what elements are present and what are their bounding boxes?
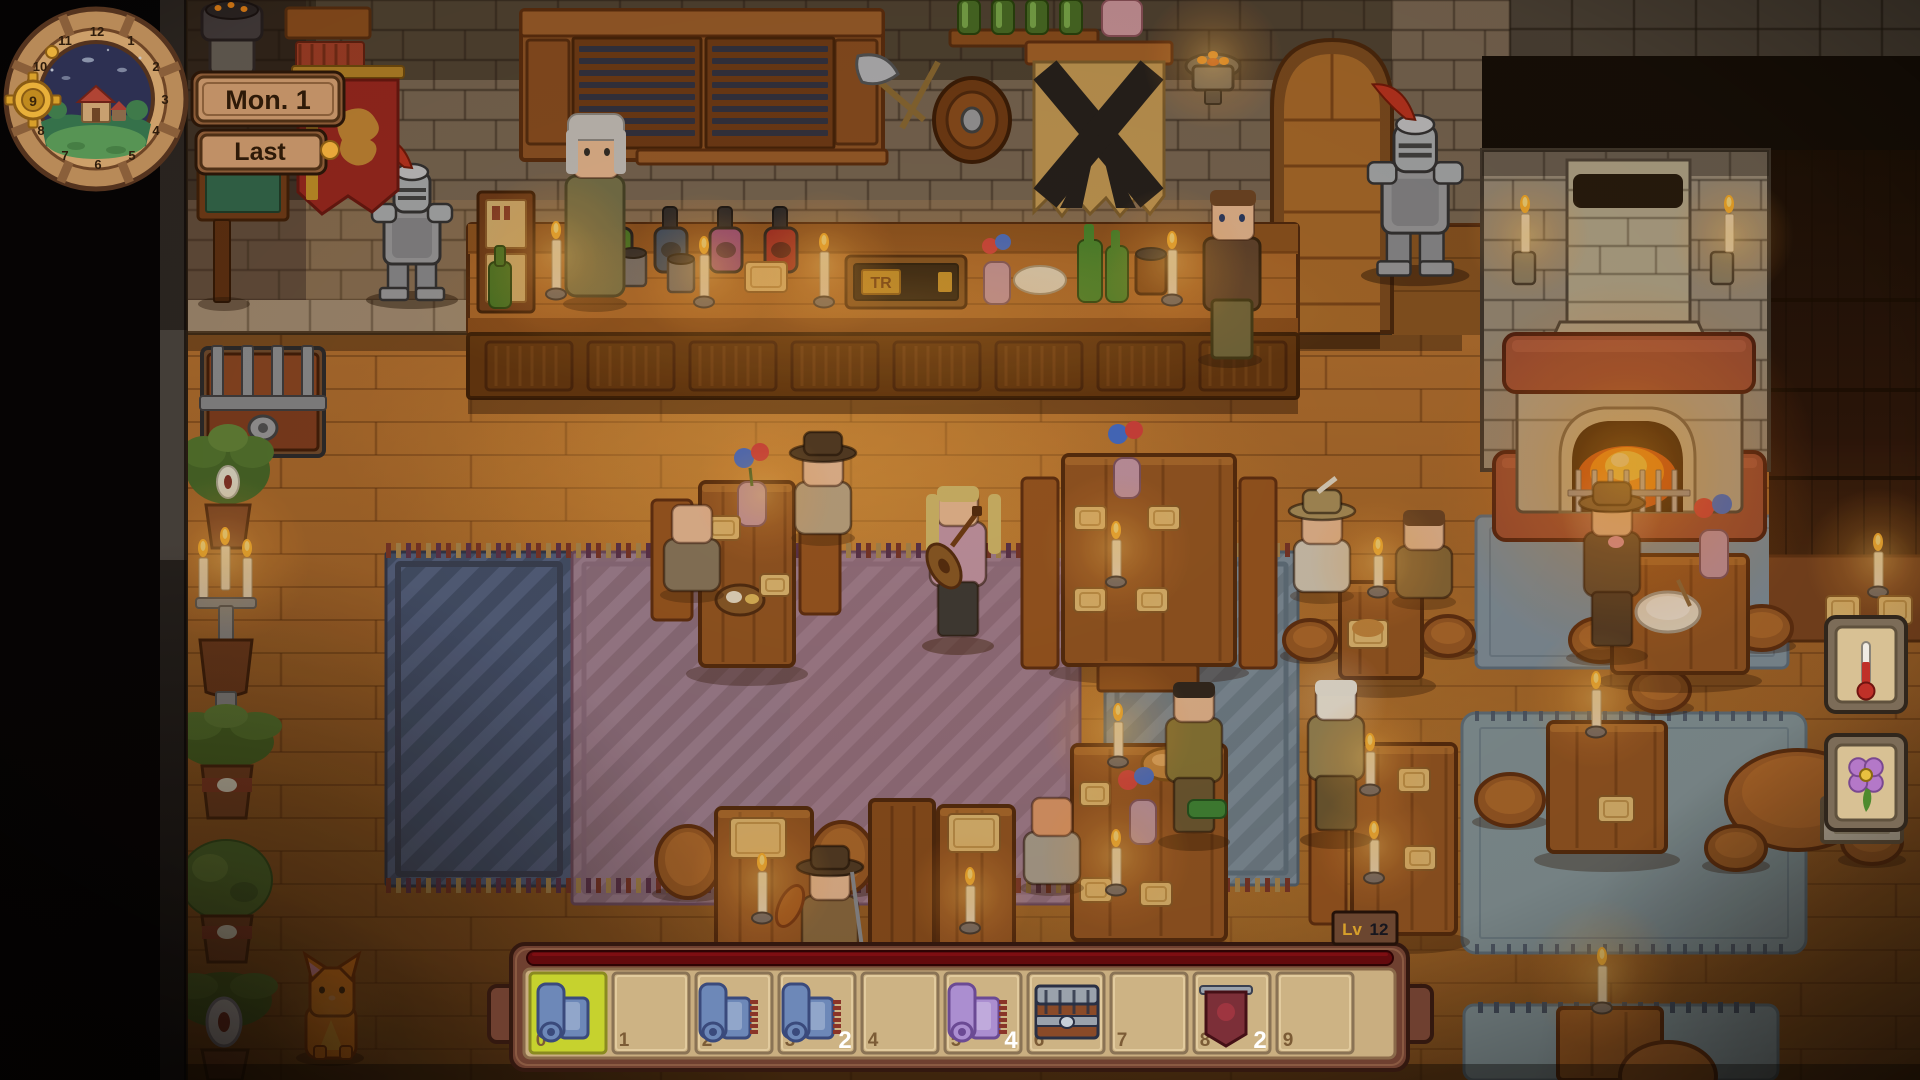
svg-text:5: 5: [128, 148, 135, 163]
svg-text:4: 4: [868, 1030, 879, 1051]
svg-text:3: 3: [161, 92, 168, 107]
svg-text:Lv: Lv: [1342, 920, 1362, 939]
svg-text:4: 4: [1004, 1027, 1018, 1054]
svg-text:2: 2: [1253, 1027, 1266, 1054]
svg-text:Last: Last: [234, 138, 286, 166]
svg-text:1: 1: [127, 33, 134, 48]
svg-text:9: 9: [29, 93, 37, 109]
svg-text:1: 1: [619, 1030, 630, 1051]
svg-text:11: 11: [58, 33, 72, 48]
svg-text:7: 7: [61, 148, 68, 163]
svg-text:6: 6: [94, 157, 101, 172]
svg-text:2: 2: [152, 59, 159, 74]
svg-text:12: 12: [1370, 920, 1389, 939]
svg-text:9: 9: [1283, 1030, 1294, 1051]
svg-text:4: 4: [152, 123, 160, 138]
svg-text:Mon. 1: Mon. 1: [225, 85, 311, 115]
svg-text:12: 12: [90, 24, 104, 39]
svg-text:2: 2: [838, 1027, 851, 1054]
svg-text:7: 7: [1117, 1030, 1128, 1051]
